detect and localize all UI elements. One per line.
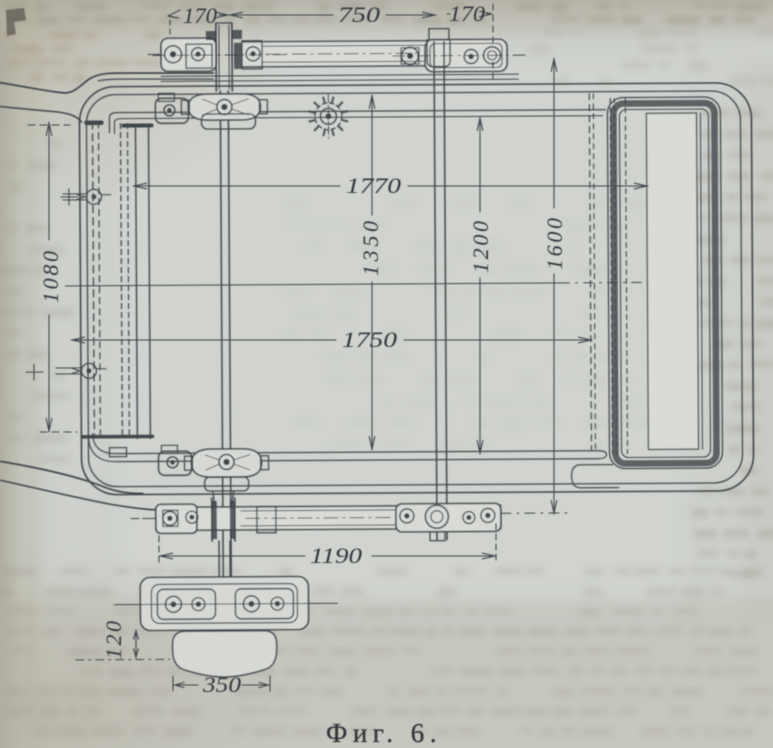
svg-text:1190: 1190 [310,543,362,568]
svg-text:170: 170 [449,1,485,26]
svg-text:1770: 1770 [346,173,401,198]
svg-text:350: 350 [202,672,241,697]
svg-text:170: 170 [183,3,217,28]
svg-text:Фиг. 6.: Фиг. 6. [326,718,442,748]
svg-text:1750: 1750 [342,327,397,352]
svg-text:120: 120 [101,621,126,659]
svg-text:750: 750 [338,2,380,27]
